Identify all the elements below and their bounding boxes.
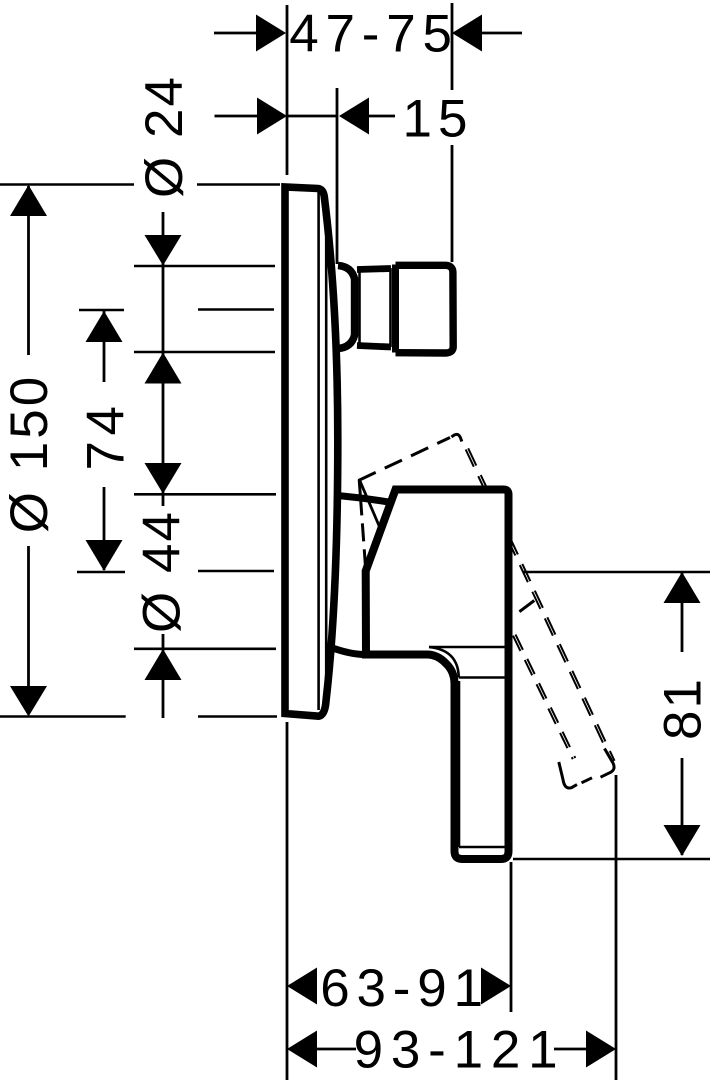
svg-text:47-75: 47-75: [289, 5, 459, 64]
svg-text:Ø 150: Ø 150: [0, 374, 59, 533]
svg-text:74: 74: [77, 401, 136, 471]
svg-text:93-121: 93-121: [354, 1021, 566, 1080]
svg-text:Ø 24: Ø 24: [135, 75, 194, 198]
svg-text:15: 15: [403, 90, 474, 149]
svg-text:63-91: 63-91: [320, 959, 490, 1018]
svg-text:Ø 44: Ø 44: [133, 510, 192, 633]
svg-text:81: 81: [654, 677, 710, 740]
